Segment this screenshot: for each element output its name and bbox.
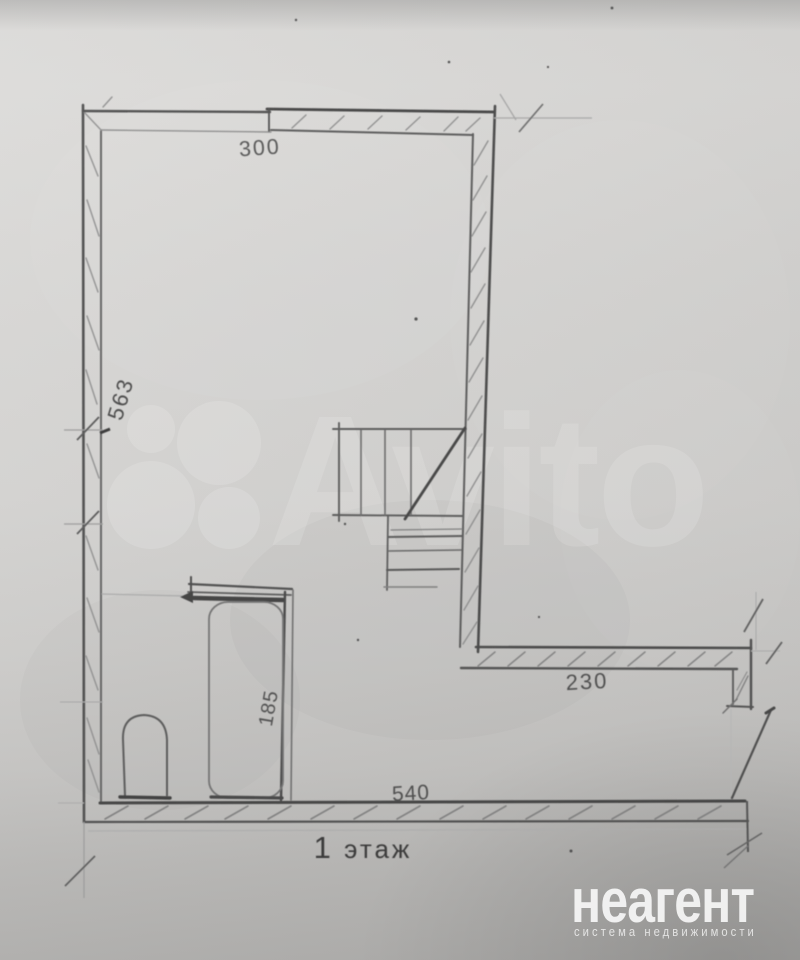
svg-text:1 этаж: 1 этаж [314,830,413,865]
svg-text:540: 540 [391,781,430,806]
svg-text:Avito: Avito [268,378,706,585]
svg-text:230: 230 [565,668,609,695]
svg-text:система недвижимости: система недвижимости [574,924,757,939]
svg-text:300: 300 [238,135,281,162]
